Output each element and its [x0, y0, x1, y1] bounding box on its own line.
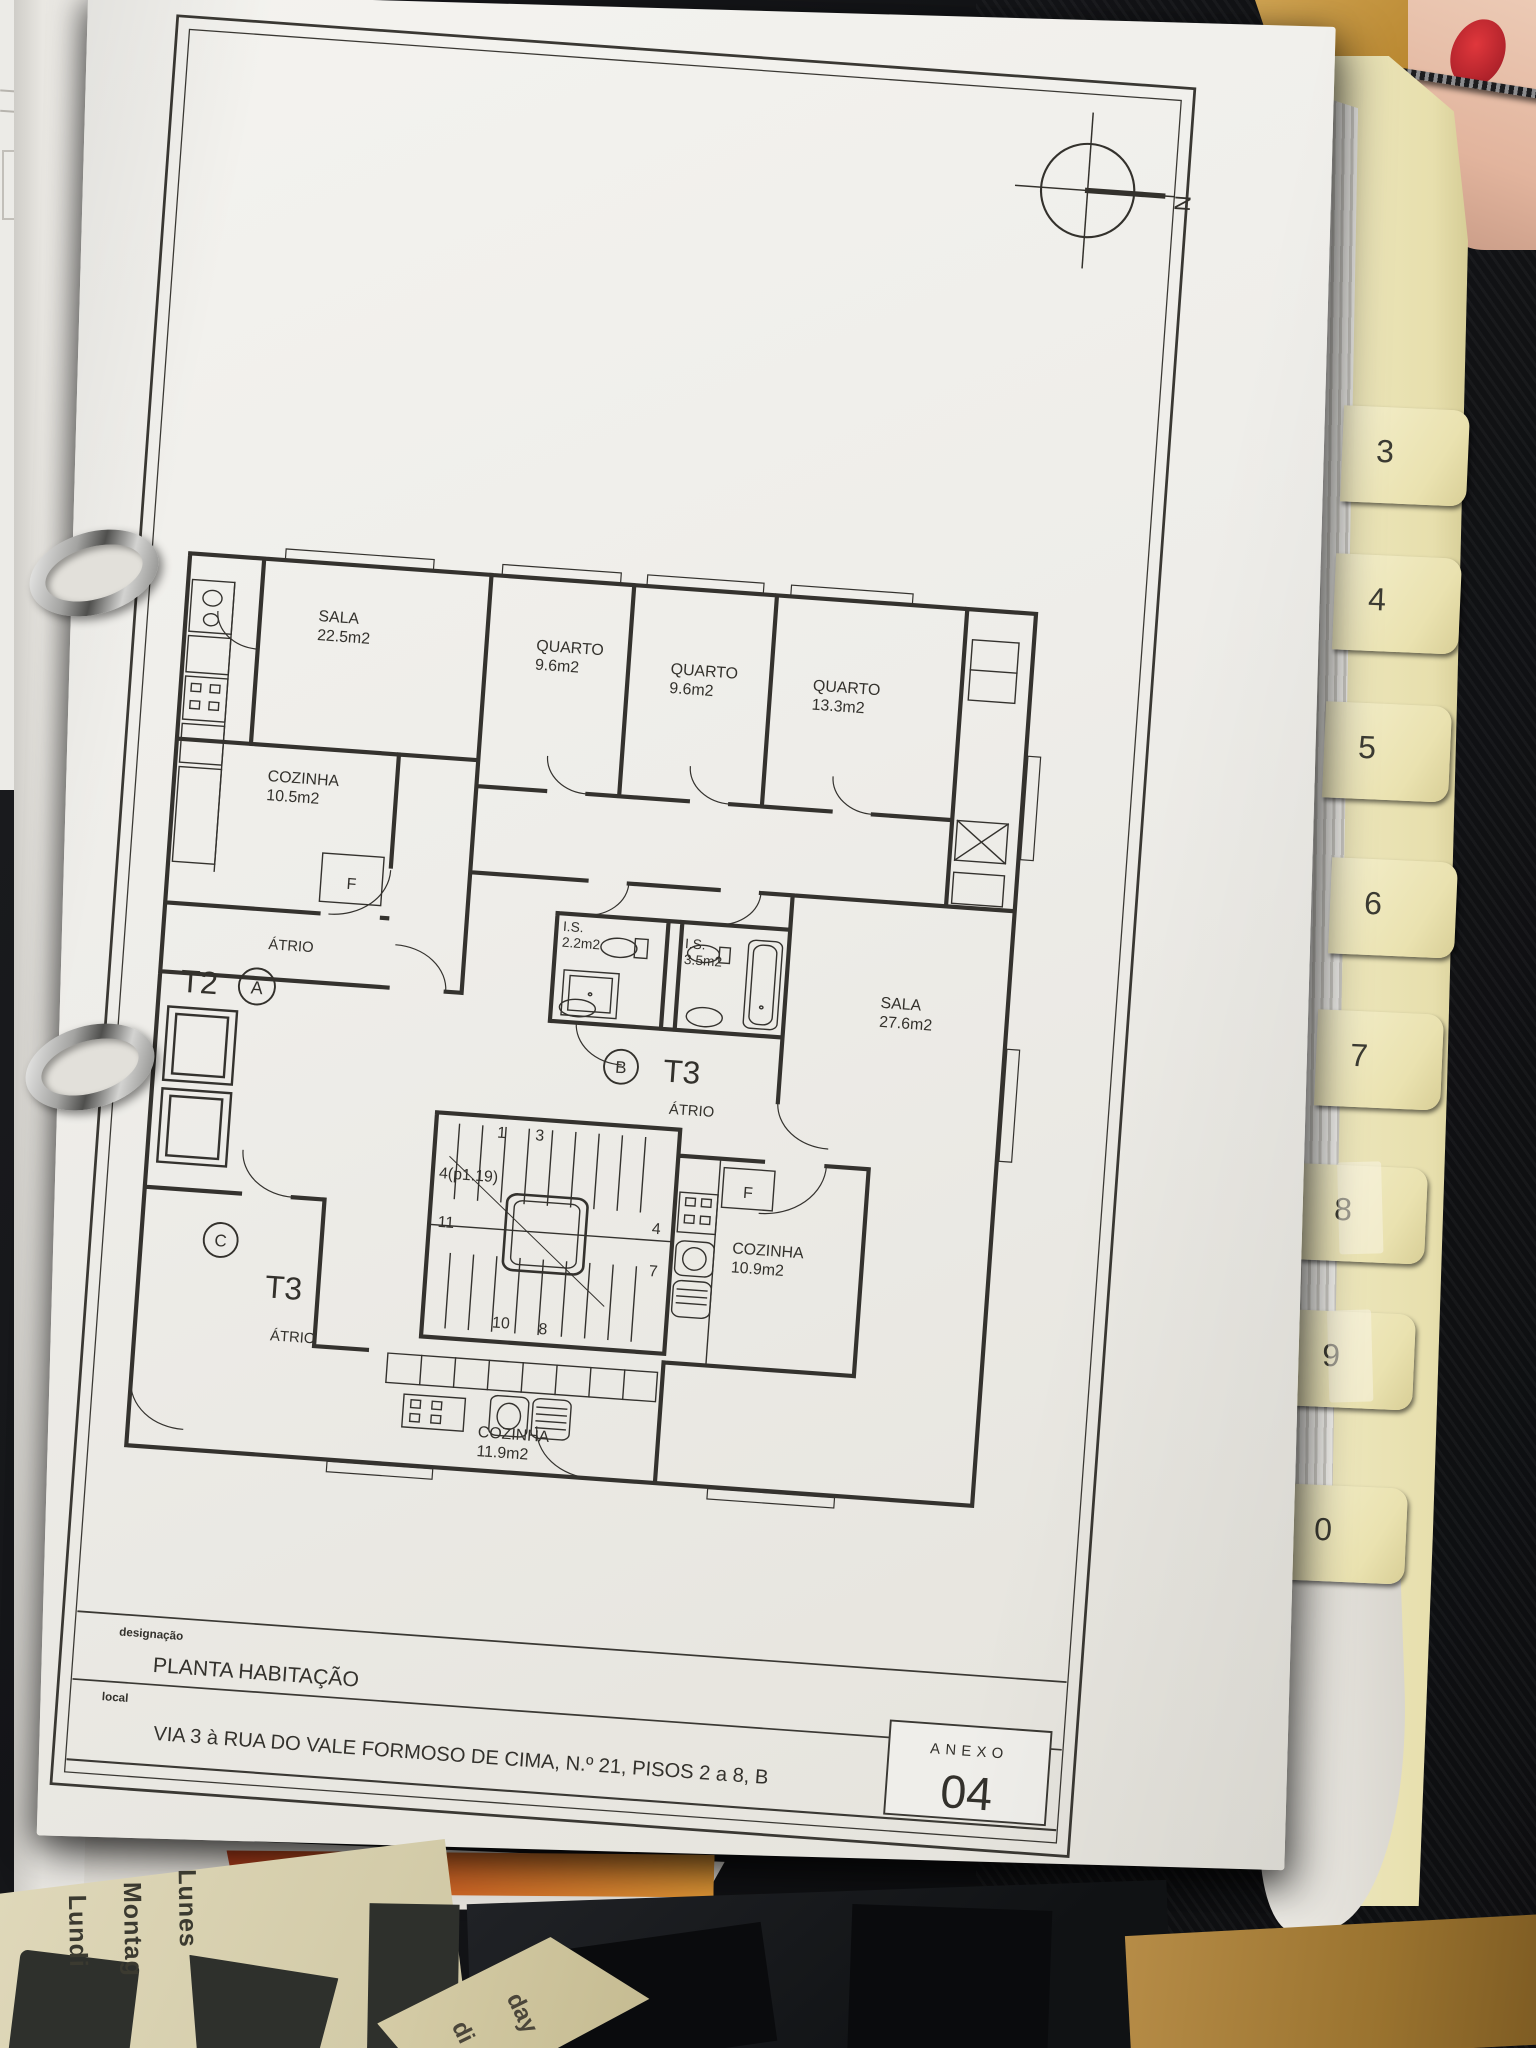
calendar-word-montag: Montag — [117, 1882, 148, 1977]
title-local-value: VIA 3 à RUA DO VALE FORMOSO DE CIMA, N.º… — [153, 1723, 770, 1789]
stair-number: 4 — [651, 1221, 661, 1239]
unit-b-hall: ÁTRIO — [668, 1101, 714, 1121]
title-designacao-label: designação — [119, 1625, 184, 1643]
tape — [1327, 1309, 1373, 1402]
divider-tab-3[interactable]: 3 — [1340, 405, 1470, 506]
unit-b-type: T3 — [662, 1052, 702, 1091]
divider-tab-label: 5 — [1357, 729, 1376, 767]
room-area-is-a: 2.2m2 — [561, 935, 600, 953]
room-name-sala-a: SALA — [318, 608, 360, 628]
unit-a-letter: A — [250, 977, 263, 998]
divider-tab-8[interactable]: 8 — [1298, 1163, 1428, 1264]
room-labels: SALA 22.5m2 QUARTO 9.6m2 QUARTO 9.6m2 QU… — [220, 605, 959, 1490]
room-area-quarto-3: 13.3m2 — [811, 697, 865, 718]
room-area-quarto-2: 9.6m2 — [669, 680, 714, 700]
unit-a-hall: ÁTRIO — [268, 936, 314, 956]
elevator-shafts — [157, 1006, 237, 1166]
room-name-quarto-1: QUARTO — [536, 637, 604, 659]
unit-c-letter: C — [214, 1231, 228, 1251]
stair-number: 7 — [648, 1263, 658, 1281]
stair-number: 1 — [497, 1125, 507, 1143]
divider-tab-label: 3 — [1375, 433, 1394, 471]
stair-number: 11 — [437, 1214, 455, 1232]
divider-tab-label: 0 — [1313, 1511, 1332, 1549]
room-area-cozinha-b: 10.9m2 — [730, 1259, 784, 1280]
divider-tab-5[interactable]: 5 — [1322, 701, 1452, 802]
room-name-sala-b: SALA — [880, 995, 922, 1015]
unit-b-letter: B — [615, 1058, 628, 1078]
divider-tab-6[interactable]: 6 — [1328, 857, 1458, 958]
calendar-word-lundi: Lundi — [62, 1895, 92, 1969]
room-name-quarto-3: QUARTO — [812, 678, 880, 700]
room-area-sala-b: 27.6m2 — [879, 1014, 933, 1035]
divider-tab-0[interactable]: 0 — [1278, 1483, 1408, 1584]
tape — [1337, 1161, 1383, 1254]
room-area-cozinha-c: 11.9m2 — [476, 1443, 529, 1464]
stair-number: 8 — [538, 1321, 548, 1339]
divider-tab-9[interactable]: 9 — [1286, 1309, 1416, 1410]
calendar-digit-shape — [183, 1955, 340, 2048]
drawing-frame — [51, 16, 1195, 1857]
calendar-word-lunes: Lunes — [172, 1869, 202, 1948]
north-label: N — [1169, 194, 1195, 212]
room-area-sala-a: 22.5m2 — [317, 627, 371, 648]
wood-shelf-edge — [1125, 1914, 1536, 2048]
anexo-number: 04 — [939, 1765, 994, 1821]
calendar-word-day: day — [500, 1989, 543, 2038]
north-compass-icon — [1010, 108, 1180, 274]
room-name-is-a: I.S. — [563, 919, 585, 935]
stair-number: 10 — [492, 1314, 511, 1332]
appliance-f-kitchen-b: F — [742, 1185, 753, 1203]
appliance-f-kitchen-a: F — [346, 876, 357, 894]
room-name-quarto-2: QUARTO — [670, 661, 738, 683]
unit-c-hall: ÁTRIO — [270, 1327, 316, 1347]
room-area-cozinha-a: 10.5m2 — [266, 787, 320, 808]
calendar-word-di: di — [445, 2017, 480, 2048]
divider-tab-7[interactable]: 7 — [1314, 1009, 1444, 1110]
cover-shape — [847, 1904, 1052, 2048]
floor-plan-drawing: N — [37, 2, 1223, 1875]
stair-number: 4(p1.19) — [438, 1165, 498, 1186]
main-page: N — [37, 0, 1336, 1870]
photo-scene: 3 4 5 6 7 8 9 0 N — [0, 0, 1536, 2048]
staircase — [422, 1123, 680, 1344]
room-area-is-b: 3.5m2 — [683, 952, 722, 970]
title-local-label: local — [101, 1690, 128, 1705]
room-area-quarto-1: 9.6m2 — [534, 657, 579, 677]
title-designacao-value: PLANTA HABITAÇÃO — [152, 1652, 360, 1692]
room-name-is-b: I.S. — [685, 936, 707, 952]
divider-tab-label: 4 — [1367, 581, 1386, 619]
title-block — [68, 1611, 1066, 1830]
unit-c-type: T3 — [264, 1268, 304, 1307]
unit-a-type: T2 — [180, 963, 220, 1002]
unit-labels: T2 A ÁTRIO B T3 ÁTRIO C T3 ÁTRIO — [155, 930, 724, 1375]
divider-tab-4[interactable]: 4 — [1332, 553, 1462, 654]
divider-tab-label: 7 — [1349, 1037, 1368, 1075]
stair-number: 3 — [535, 1127, 545, 1145]
divider-tab-label: 6 — [1363, 885, 1382, 923]
